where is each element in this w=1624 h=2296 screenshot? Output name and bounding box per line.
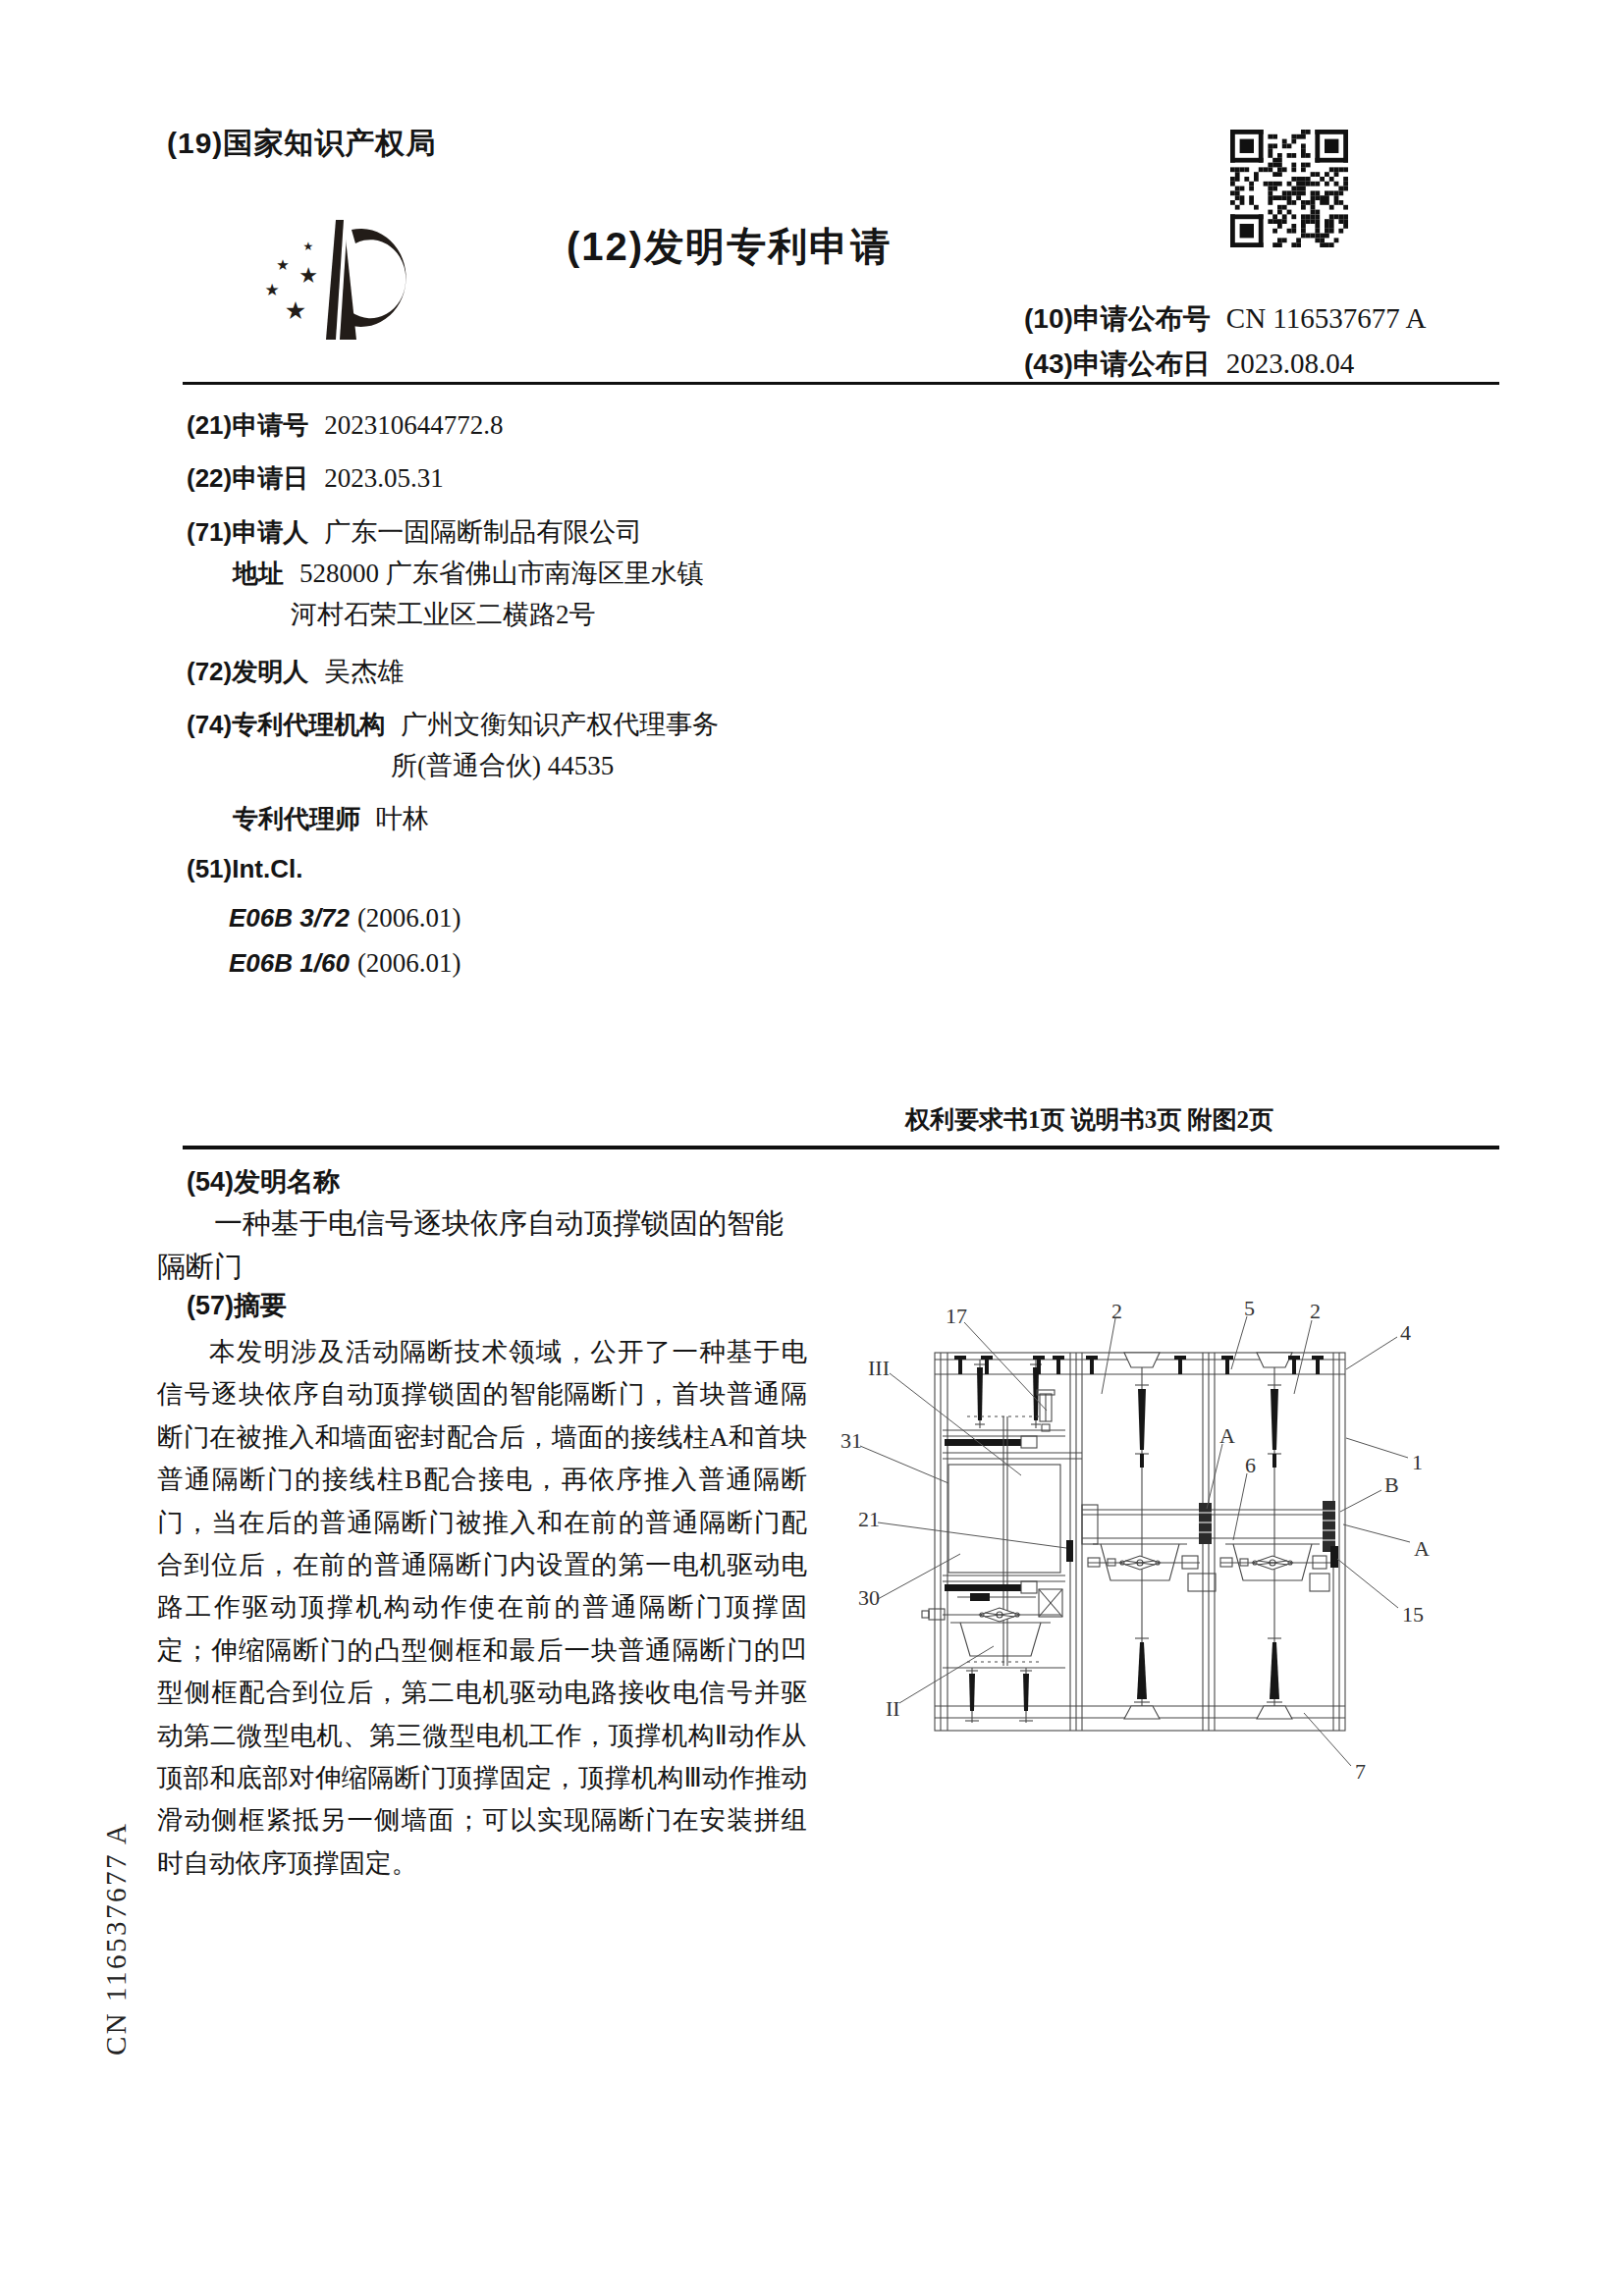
panel-2-mechanism: [1088, 1353, 1216, 1719]
intcl-label: (51)Int.Cl.: [187, 854, 302, 884]
inventor-row: (72)发明人 吴杰雄: [187, 654, 404, 689]
svg-text:★: ★: [264, 281, 279, 299]
figure-label-4: 4: [1400, 1320, 1411, 1345]
cnipa-logo: ★ ★ ★ ★ ★: [257, 214, 406, 353]
qr-code: [1230, 130, 1348, 247]
panel-1-internals: [922, 1360, 1082, 1723]
figure-label-2: 2: [1111, 1299, 1122, 1323]
figure-label-21: 21: [858, 1507, 880, 1531]
figure-label-A: A: [1414, 1536, 1430, 1561]
figure-label-2: 2: [1310, 1299, 1321, 1323]
application-number-row: (21)申请号 202310644772.8: [187, 408, 504, 443]
filing-date-label: (22)申请日: [187, 461, 308, 496]
horizontal-rule-middle: [183, 1146, 1499, 1149]
svg-text:★: ★: [285, 297, 306, 324]
address-row: 地址 528000 广东省佛山市南海区里水镇: [233, 556, 704, 591]
applicant-value: 广东一固隔断制品有限公司: [324, 514, 642, 550]
publication-number-label: (10)申请公布号: [1024, 300, 1211, 338]
agent-label: 专利代理师: [233, 802, 360, 836]
patent-front-page: { "header": { "office": "(19)国家知识产权局", "…: [0, 0, 1624, 2296]
figure-label-B: B: [1384, 1472, 1399, 1497]
logo-stars: ★ ★ ★ ★ ★: [264, 240, 317, 324]
figure-label-17: 17: [946, 1304, 967, 1328]
figure-label-6: 6: [1245, 1453, 1256, 1477]
figure-label-15: 15: [1402, 1602, 1424, 1627]
publication-date-value: 2023.08.04: [1226, 347, 1355, 380]
filing-date-value: 2023.05.31: [324, 463, 444, 494]
logo-crescent: [346, 229, 406, 327]
agency-line2: 所(普通合伙) 44535: [391, 748, 614, 783]
figure-label-7: 7: [1355, 1759, 1366, 1784]
figure-label-5: 5: [1244, 1296, 1255, 1320]
applicant-row: (71)申请人 广东一固隔断制品有限公司: [187, 514, 642, 550]
invention-title: 一种基于电信号逐块依序自动顶撑锁固的智能隔断门: [157, 1201, 807, 1288]
intcl-code-1: E06B 3/72: [229, 903, 350, 934]
patent-drawing: 172524III311BAA62130II157: [835, 1261, 1468, 1787]
publication-date-label: (43)申请公布日: [1024, 346, 1211, 383]
applicant-label: (71)申请人: [187, 515, 308, 550]
publication-date-row: (43)申请公布日 2023.08.04: [1024, 346, 1354, 383]
figure-label-30: 30: [858, 1585, 880, 1610]
svg-text:★: ★: [303, 240, 314, 253]
document-type-title: (12)发明专利申请: [567, 220, 892, 274]
publication-number-value: CN 116537677 A: [1226, 302, 1427, 335]
intcl-entry-2: E06B 1/60 (2006.01): [229, 948, 461, 979]
agency-label: (74)专利代理机构: [187, 708, 385, 742]
pages-summary: 权利要求书1页 说明书3页 附图2页: [905, 1103, 1273, 1136]
figure-label-A: A: [1219, 1423, 1235, 1448]
inventor-value: 吴杰雄: [324, 654, 404, 689]
intcl-entry-1: E06B 3/72 (2006.01): [229, 903, 461, 934]
invention-title-label: (54)发明名称: [187, 1164, 340, 1200]
intcl-date-2: (2006.01): [357, 948, 461, 979]
address-row-2: 河村石荣工业区二横路2号: [291, 597, 596, 632]
abstract-text: 本发明涉及活动隔断技术领域，公开了一种基于电信号逐块依序自动顶撑锁固的智能隔断门…: [157, 1331, 807, 1885]
patent-office-name: (19)国家知识产权局: [167, 124, 436, 164]
agency-row: (74)专利代理机构 广州文衡知识产权代理事务: [187, 707, 719, 742]
address-label: 地址: [233, 557, 284, 591]
address-line1: 528000 广东省佛山市南海区里水镇: [299, 556, 704, 591]
agent-value: 叶林: [376, 801, 429, 836]
figure-label-III: III: [868, 1356, 890, 1380]
svg-text:★: ★: [276, 257, 289, 273]
intcl-code-2: E06B 1/60: [229, 948, 350, 979]
panel-3-mechanism: [1220, 1353, 1330, 1719]
publication-number-row: (10)申请公布号 CN 116537677 A: [1024, 300, 1426, 338]
side-publication-code: CN 116537677 A: [100, 1821, 133, 2056]
intcl-row: (51)Int.Cl.: [187, 854, 302, 884]
application-number-label: (21)申请号: [187, 408, 308, 443]
svg-text:★: ★: [298, 263, 318, 288]
figure-label-1: 1: [1412, 1450, 1423, 1474]
agency-row-2: 所(普通合伙) 44535: [391, 748, 614, 783]
address-line2: 河村石荣工业区二横路2号: [291, 597, 596, 632]
agency-line1: 广州文衡知识产权代理事务: [401, 707, 719, 742]
intcl-date-1: (2006.01): [357, 903, 461, 934]
figure-label-II: II: [886, 1696, 900, 1721]
inventor-label: (72)发明人: [187, 655, 308, 689]
horizontal-rule-top: [183, 382, 1499, 385]
agent-row: 专利代理师 叶林: [233, 801, 429, 836]
filing-date-row: (22)申请日 2023.05.31: [187, 461, 444, 496]
abstract-label: (57)摘要: [187, 1288, 287, 1323]
figure-label-31: 31: [840, 1428, 862, 1453]
application-number-value: 202310644772.8: [324, 410, 503, 441]
